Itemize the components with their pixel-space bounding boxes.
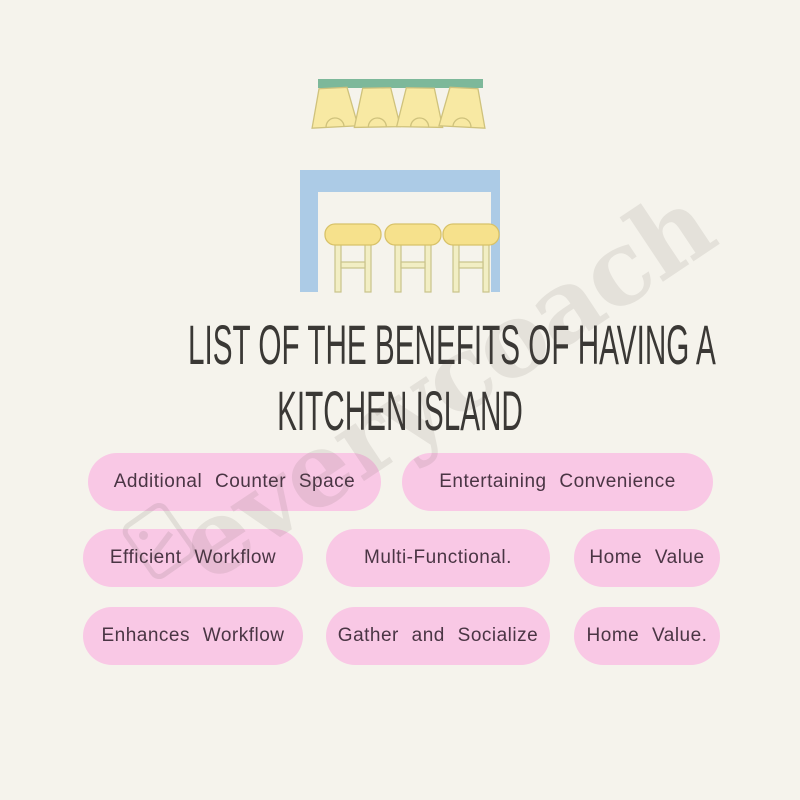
benefit-pill-label: Home Value	[589, 547, 704, 569]
title-line-1: LIST OF THE BENEFITS OF HAVING A	[188, 312, 612, 378]
benefit-pill-entertaining-convenience: Entertaining Convenience	[402, 453, 713, 511]
benefit-pill-additional-counter-space: Additional Counter Space	[88, 453, 381, 511]
benefit-pill-label: Entertaining Convenience	[439, 471, 676, 493]
page-title: LIST OF THE BENEFITS OF HAVING A KITCHEN…	[188, 312, 612, 444]
benefit-pill-label: Home Value.	[587, 625, 708, 647]
infographic-canvas: LIST OF THE BENEFITS OF HAVING A KITCHEN…	[0, 0, 800, 800]
lamp-shade-icon	[354, 88, 401, 128]
pendant-light-fixture	[310, 79, 487, 128]
benefit-pill-label: Efficient Workflow	[110, 547, 276, 569]
fixture-bar	[318, 79, 483, 88]
benefit-pill-label: Enhances Workflow	[101, 625, 284, 647]
benefit-pill-enhances-workflow: Enhances Workflow	[83, 607, 303, 665]
benefit-pill-home-value: Home Value	[574, 529, 720, 587]
benefit-pill-multi-functional: Multi-Functional.	[326, 529, 550, 587]
lamp-shade-icon	[397, 88, 444, 128]
bar-stool-icon	[385, 224, 441, 292]
benefit-pill-label: Multi-Functional.	[364, 547, 512, 569]
bar-stool-icon	[325, 224, 381, 292]
benefit-pill-gather-and-socialize: Gather and Socialize	[326, 607, 550, 665]
benefit-pill-label: Additional Counter Space	[114, 471, 355, 493]
benefit-pill-efficient-workflow: Efficient Workflow	[83, 529, 303, 587]
lamp-shade-icon	[439, 87, 487, 128]
lamp-shade-icon	[310, 87, 358, 128]
kitchen-island-illustration	[0, 0, 800, 300]
benefit-pill-home-value-2: Home Value.	[574, 607, 720, 665]
bar-stool-icon	[443, 224, 499, 292]
title-line-2: KITCHEN ISLAND	[188, 378, 612, 444]
benefit-pill-label: Gather and Socialize	[338, 625, 538, 647]
